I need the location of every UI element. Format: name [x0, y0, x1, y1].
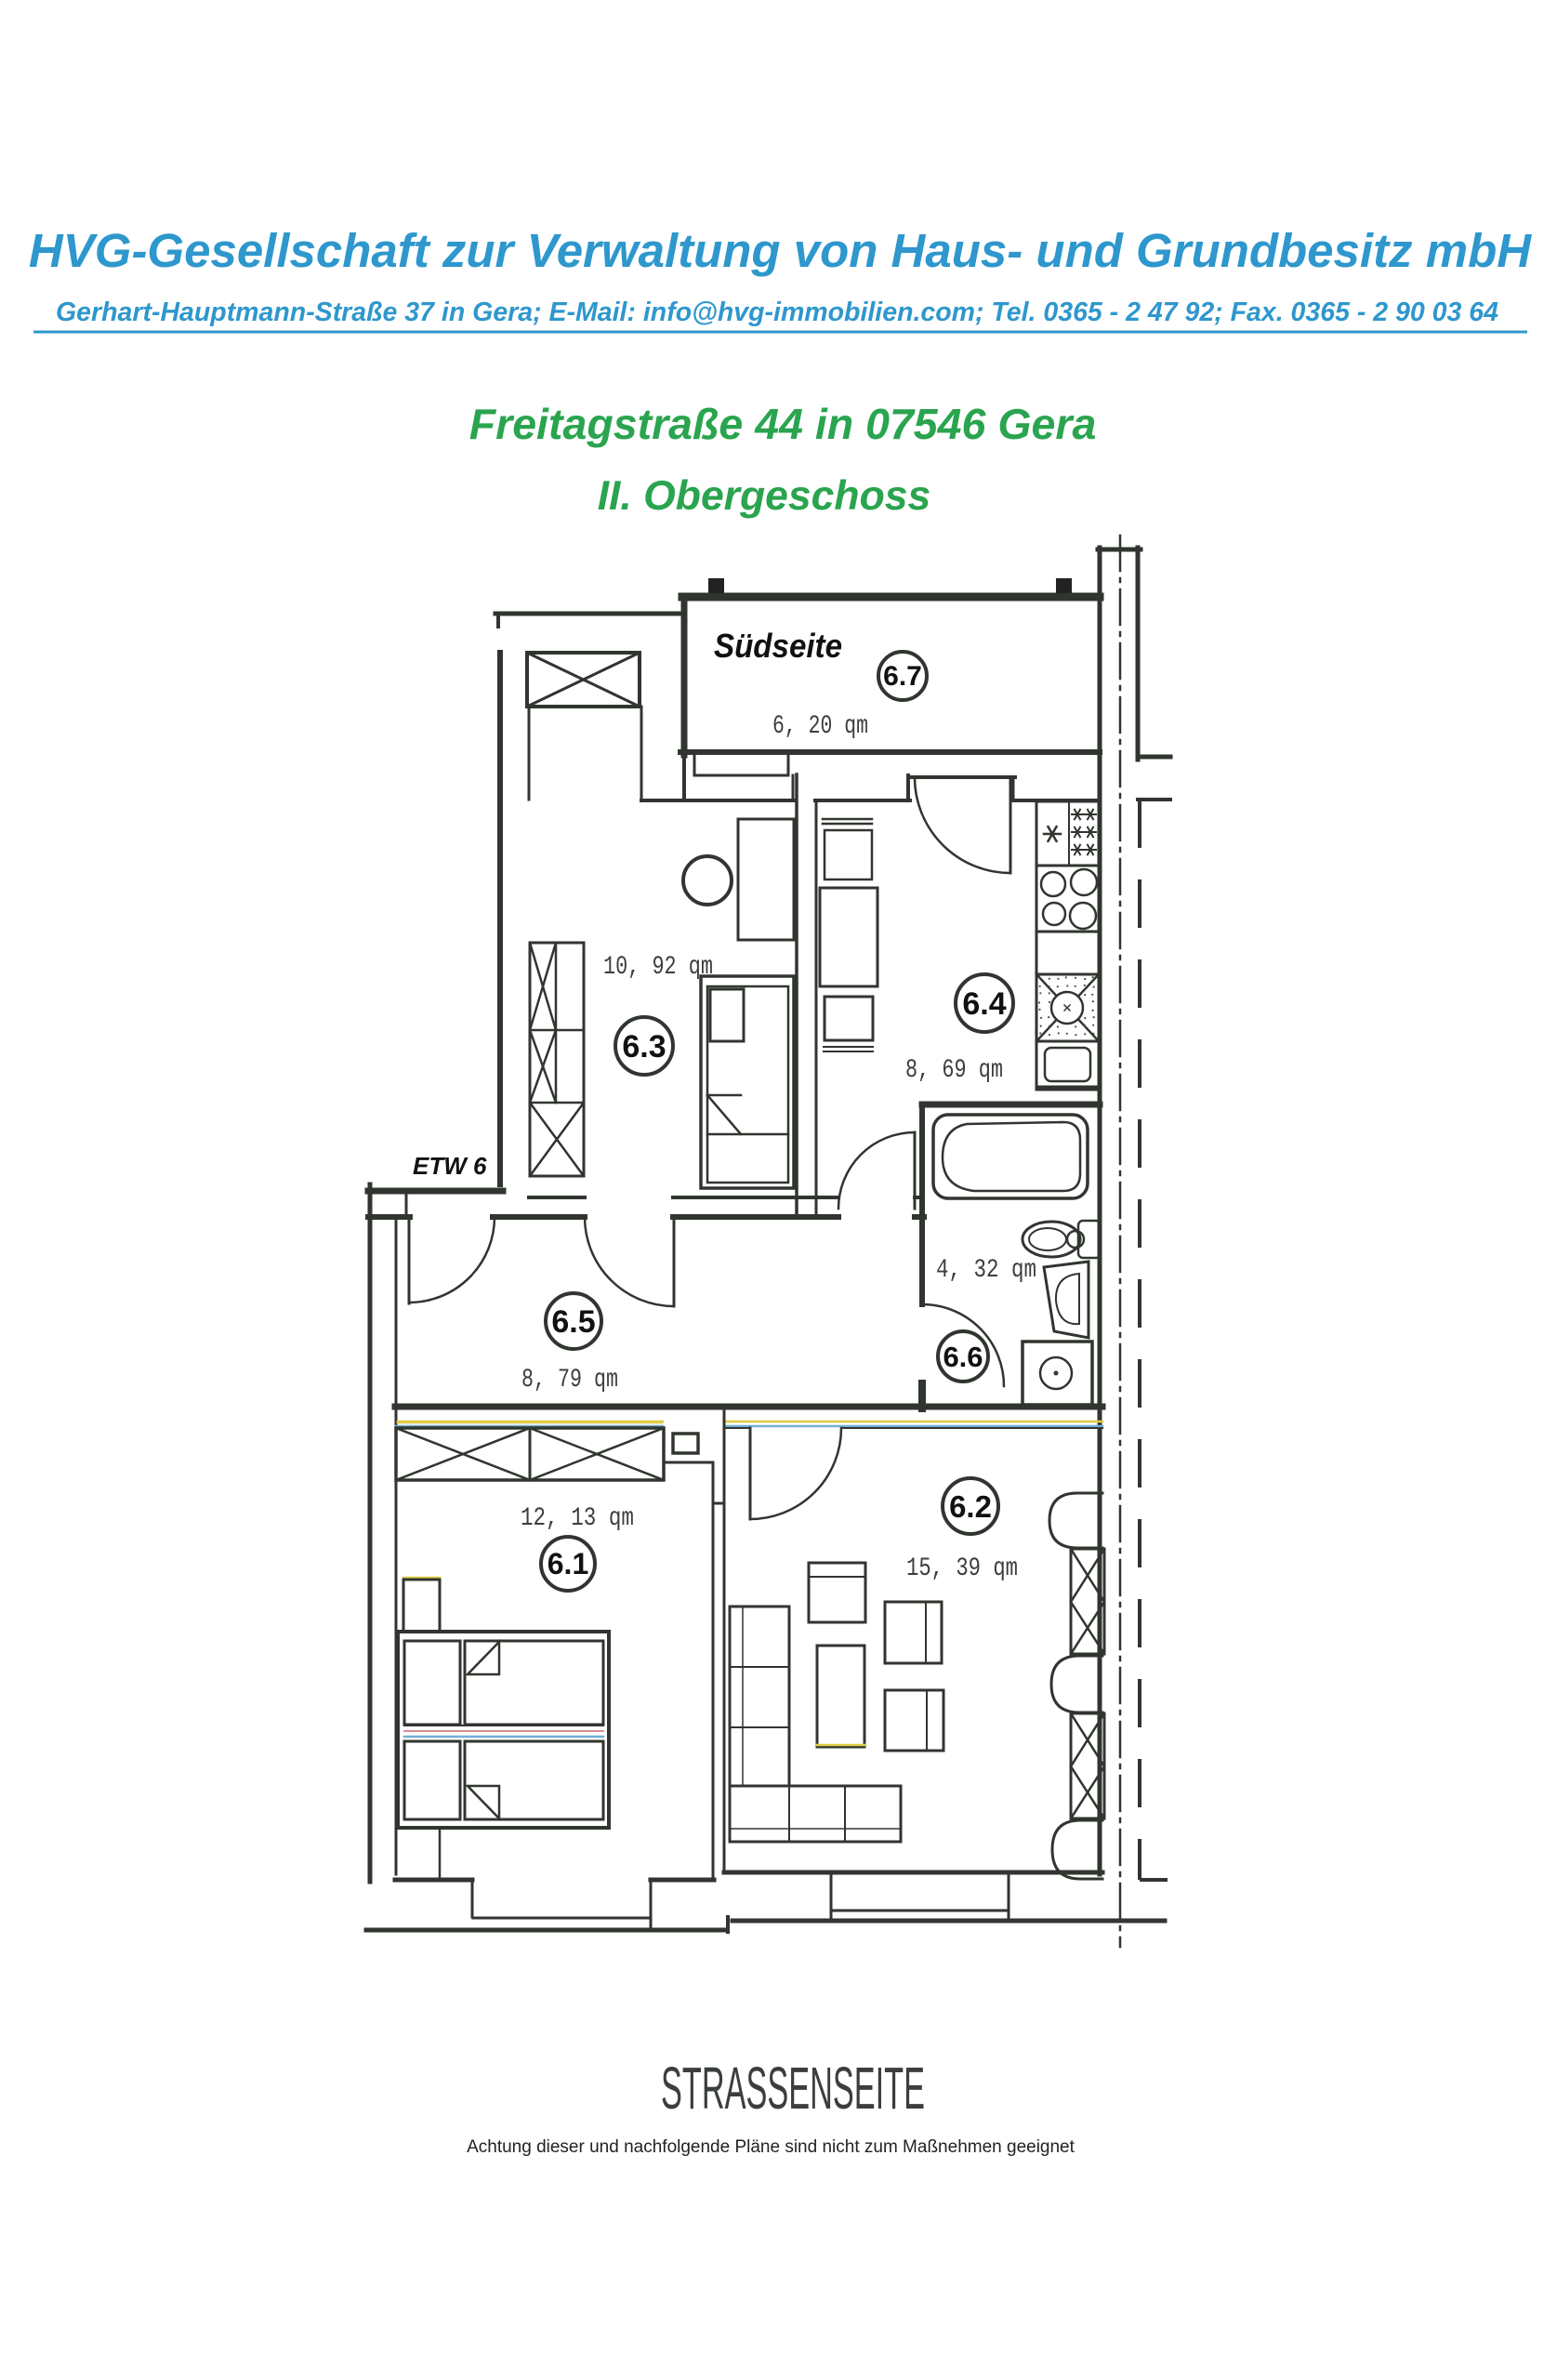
svg-text:6.5: 6.5 — [551, 1304, 595, 1340]
svg-text:6.4: 6.4 — [962, 986, 1006, 1022]
svg-text:6.6: 6.6 — [943, 1341, 983, 1373]
svg-text:8, 69 qm: 8, 69 qm — [905, 1056, 1003, 1085]
svg-text:II. Obergeschoss: II. Obergeschoss — [598, 473, 931, 519]
svg-text:8, 79 qm: 8, 79 qm — [521, 1366, 618, 1395]
svg-text:12, 13 qm: 12, 13 qm — [521, 1504, 634, 1533]
svg-text:Gerhart-Hauptmann-Straße 37 in: Gerhart-Hauptmann-Straße 37 in Gera; E-M… — [56, 297, 1498, 327]
svg-text:6.2: 6.2 — [949, 1489, 992, 1524]
svg-text:ETW 6: ETW 6 — [413, 1152, 487, 1180]
svg-text:15, 39 qm: 15, 39 qm — [906, 1554, 1018, 1583]
svg-text:Freitagstraße 44 in 07546 Gera: Freitagstraße 44 in 07546 Gera — [469, 400, 1097, 448]
svg-text:Achtung dieser und nachfolgend: Achtung dieser und nachfolgende Pläne si… — [467, 2137, 1075, 2157]
svg-text:6.3: 6.3 — [622, 1029, 666, 1064]
svg-text:6.7: 6.7 — [883, 661, 922, 692]
svg-text:6, 20 qm: 6, 20 qm — [772, 712, 868, 741]
svg-text:HVG-Gesellschaft zur Verwaltun: HVG-Gesellschaft zur Verwaltung von Haus… — [29, 224, 1532, 277]
svg-text:STRASSENSEITE: STRASSENSEITE — [661, 2055, 925, 2122]
svg-text:Südseite: Südseite — [714, 627, 842, 665]
svg-text:4, 32 qm: 4, 32 qm — [936, 1256, 1036, 1285]
svg-text:10, 92 qm: 10, 92 qm — [603, 953, 713, 982]
svg-text:6.1: 6.1 — [548, 1547, 588, 1580]
